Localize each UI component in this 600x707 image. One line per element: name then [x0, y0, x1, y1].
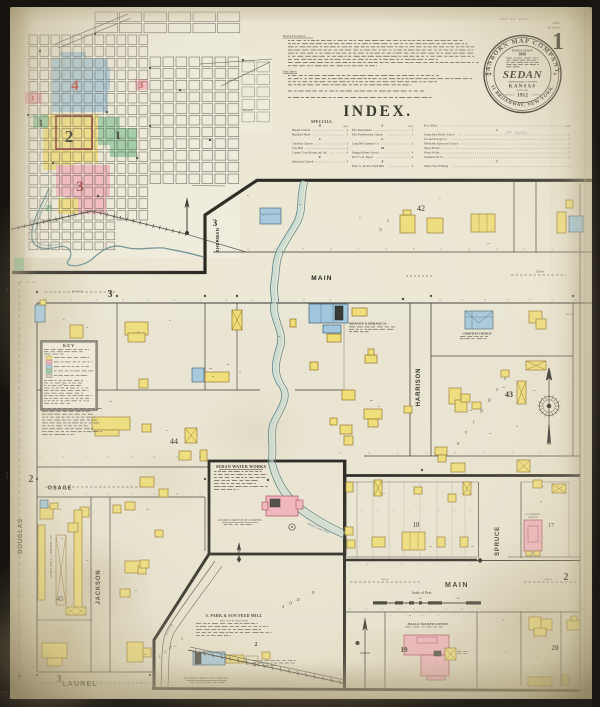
- svg-text:E.80 DR: E.80 DR: [7, 471, 9, 479]
